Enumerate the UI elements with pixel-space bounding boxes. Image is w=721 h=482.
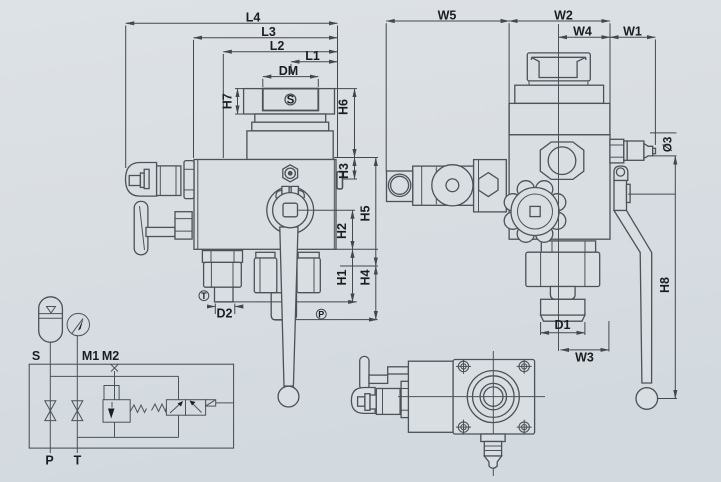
svg-text:H6: H6: [337, 99, 351, 115]
svg-text:L2: L2: [270, 39, 285, 53]
svg-text:H8: H8: [658, 277, 672, 293]
svg-text:H1: H1: [335, 269, 349, 285]
svg-text:L3: L3: [261, 25, 276, 39]
svg-text:H2: H2: [335, 223, 349, 239]
svg-text:H4: H4: [358, 269, 372, 285]
svg-text:DM: DM: [279, 64, 298, 78]
svg-text:H3: H3: [337, 163, 351, 179]
svg-text:Ø3: Ø3: [663, 137, 675, 152]
svg-text:W2: W2: [554, 8, 573, 22]
svg-text:W3: W3: [575, 351, 594, 365]
svg-text:W1: W1: [623, 25, 642, 39]
svg-text:D2: D2: [217, 307, 233, 321]
svg-text:P: P: [318, 310, 324, 320]
svg-text:S: S: [287, 94, 295, 106]
svg-text:M1: M1: [82, 349, 99, 363]
svg-text:L4: L4: [246, 11, 261, 25]
svg-text:M2: M2: [102, 349, 119, 363]
svg-text:L1: L1: [305, 49, 320, 63]
svg-text:T: T: [74, 454, 82, 468]
svg-text:S: S: [32, 349, 40, 363]
svg-text:H5: H5: [358, 205, 372, 221]
svg-text:P: P: [45, 454, 53, 468]
svg-text:W4: W4: [573, 25, 592, 39]
svg-text:T: T: [201, 291, 207, 301]
svg-text:H7: H7: [221, 93, 235, 109]
svg-text:D1: D1: [555, 318, 571, 332]
svg-text:W5: W5: [438, 8, 457, 22]
